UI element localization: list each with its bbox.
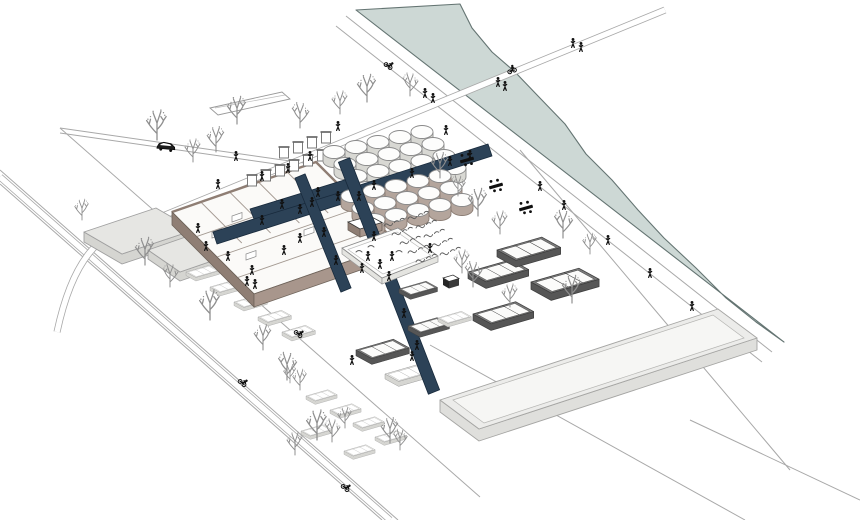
person	[538, 181, 541, 190]
compost-cube	[443, 275, 459, 289]
crop-row	[439, 247, 461, 257]
planter-box	[344, 445, 375, 460]
shed-box	[258, 310, 291, 326]
truss-portal	[321, 132, 332, 143]
picnic-table	[519, 201, 533, 214]
tree	[332, 90, 347, 114]
picnic-table	[489, 179, 503, 192]
tree	[403, 72, 418, 96]
tree	[293, 369, 307, 390]
truss-portal	[293, 142, 304, 153]
truss-portal	[289, 160, 300, 171]
person	[444, 125, 447, 134]
person	[336, 121, 339, 130]
person	[350, 355, 353, 364]
planter-box	[353, 417, 384, 432]
tree	[75, 199, 89, 220]
illustration-canvas: Axonometric architectural site illustrat…	[0, 0, 860, 520]
tree	[254, 324, 271, 350]
basin	[473, 302, 534, 331]
planter-box	[306, 390, 337, 405]
tree	[583, 233, 597, 254]
truss-portal	[247, 175, 258, 186]
person	[216, 179, 219, 188]
planter-box	[330, 404, 361, 419]
car	[157, 141, 176, 152]
tree	[357, 74, 375, 102]
tree	[207, 126, 224, 152]
truss-portal	[307, 137, 318, 148]
tree	[147, 109, 167, 140]
tank	[407, 204, 429, 226]
truss-portal	[275, 165, 286, 176]
person	[648, 268, 651, 277]
tree	[185, 138, 200, 162]
person	[690, 301, 693, 310]
tree	[292, 102, 309, 128]
tree	[492, 210, 507, 234]
site-axonometric-illustration: Axonometric architectural site illustrat…	[0, 0, 860, 520]
person	[431, 93, 434, 102]
crop-row	[431, 238, 453, 248]
person	[234, 151, 237, 160]
person	[562, 200, 565, 209]
tank	[385, 209, 407, 231]
tank	[429, 199, 451, 221]
trench	[210, 92, 290, 115]
basin	[356, 339, 409, 364]
crop-row	[423, 229, 445, 239]
basin	[399, 281, 437, 299]
person	[606, 235, 609, 244]
tree	[555, 210, 573, 238]
basin	[531, 268, 599, 300]
truss-portal	[279, 147, 290, 158]
